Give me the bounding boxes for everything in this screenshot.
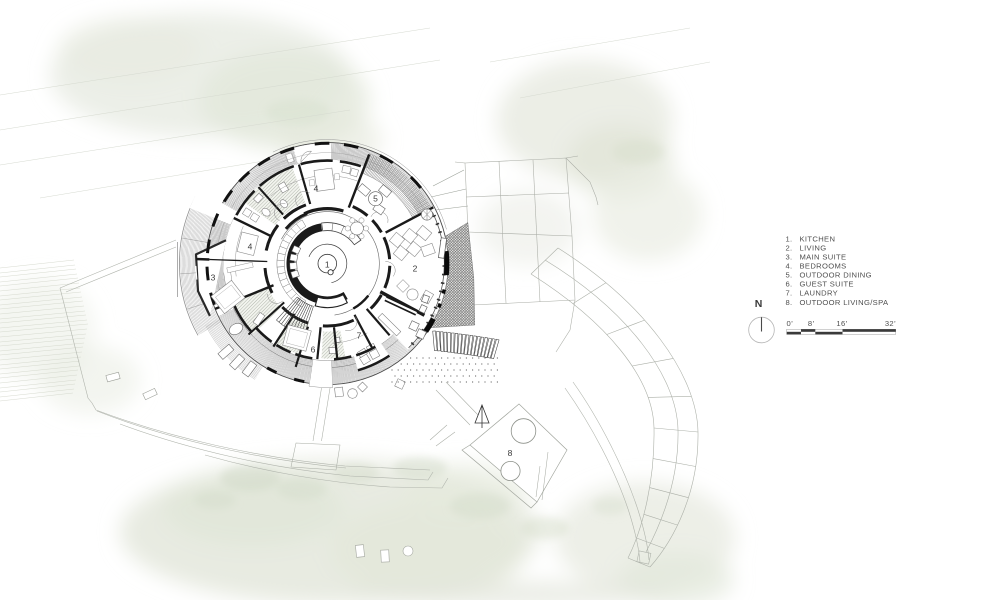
svg-text:5.: 5.: [785, 271, 792, 280]
svg-text:GUEST SUITE: GUEST SUITE: [800, 280, 854, 289]
svg-text:4.: 4.: [785, 262, 792, 271]
svg-text:1.: 1.: [785, 234, 792, 243]
svg-text:2: 2: [413, 264, 418, 274]
svg-text:32’: 32’: [885, 319, 896, 328]
svg-text:3.: 3.: [785, 252, 792, 261]
svg-text:LAUNDRY: LAUNDRY: [800, 289, 839, 298]
svg-text:KITCHEN: KITCHEN: [800, 234, 836, 243]
svg-text:0’: 0’: [787, 319, 794, 328]
svg-text:7.: 7.: [785, 289, 792, 298]
svg-text:5: 5: [373, 194, 378, 204]
svg-text:1: 1: [325, 259, 330, 269]
svg-text:8.: 8.: [785, 298, 792, 307]
svg-text:8’: 8’: [808, 319, 815, 328]
svg-text:4: 4: [248, 242, 253, 252]
svg-text:LIVING: LIVING: [800, 243, 827, 252]
svg-text:6.: 6.: [785, 280, 792, 289]
svg-text:8: 8: [508, 448, 513, 458]
svg-text:OUTDOOR LIVING/SPA: OUTDOOR LIVING/SPA: [800, 298, 889, 307]
svg-text:3: 3: [211, 273, 216, 283]
svg-text:MAIN SUITE: MAIN SUITE: [800, 252, 847, 261]
svg-text:N: N: [755, 298, 763, 310]
svg-text:BEDROOMS: BEDROOMS: [800, 262, 847, 271]
svg-text:OUTDOOR DINING: OUTDOOR DINING: [800, 271, 872, 280]
svg-text:16’: 16’: [836, 319, 847, 328]
svg-text:6: 6: [311, 345, 316, 355]
svg-text:2.: 2.: [785, 243, 792, 252]
svg-text:4: 4: [314, 184, 319, 194]
svg-text:7: 7: [357, 331, 362, 341]
